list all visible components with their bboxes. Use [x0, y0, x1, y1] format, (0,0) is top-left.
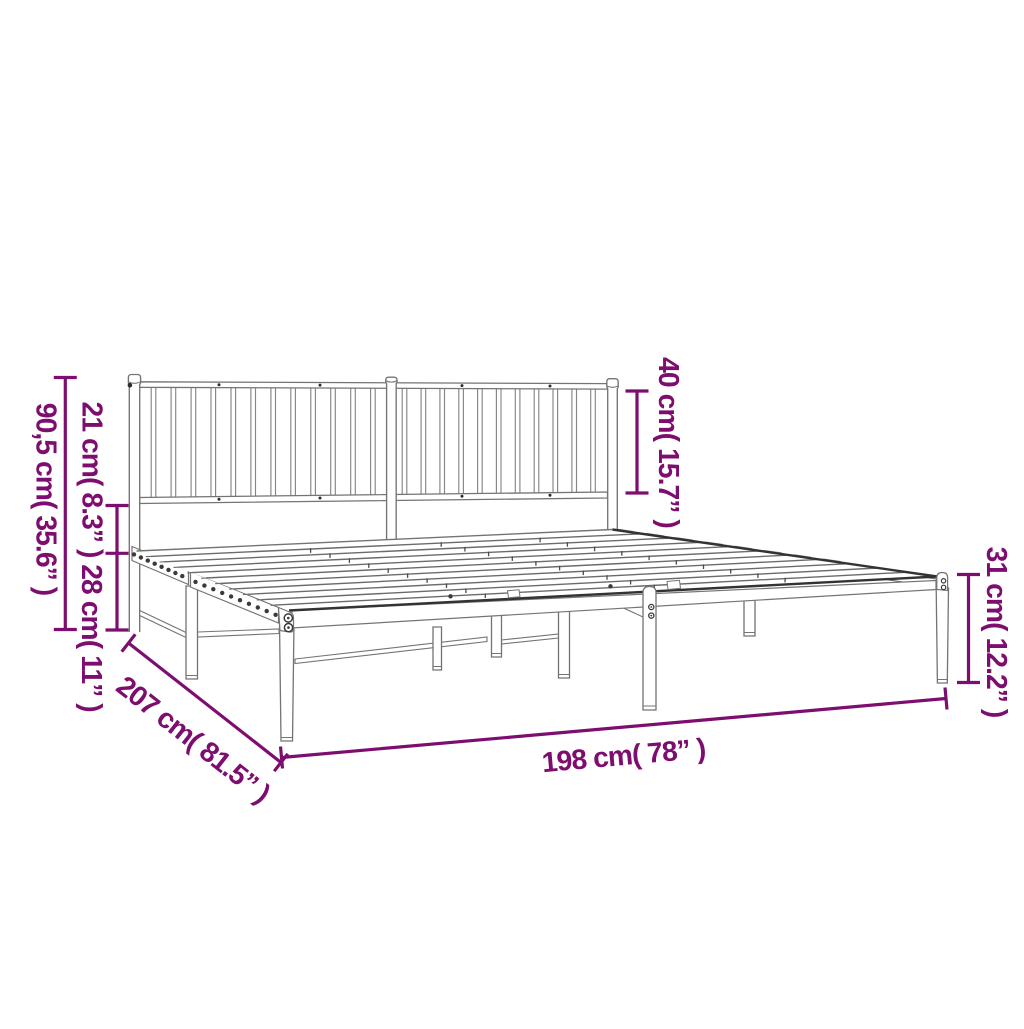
svg-text:28 cm( 11” ): 28 cm( 11” ): [76, 564, 108, 712]
svg-text:40 cm( 15.7” ): 40 cm( 15.7” ): [653, 357, 685, 528]
svg-text:90,5 cm( 35.6” ): 90,5 cm( 35.6” ): [30, 403, 62, 596]
svg-text:31 cm( 12.2” ): 31 cm( 12.2” ): [981, 547, 1013, 718]
svg-text:21 cm( 8.3” ): 21 cm( 8.3” ): [76, 402, 108, 558]
